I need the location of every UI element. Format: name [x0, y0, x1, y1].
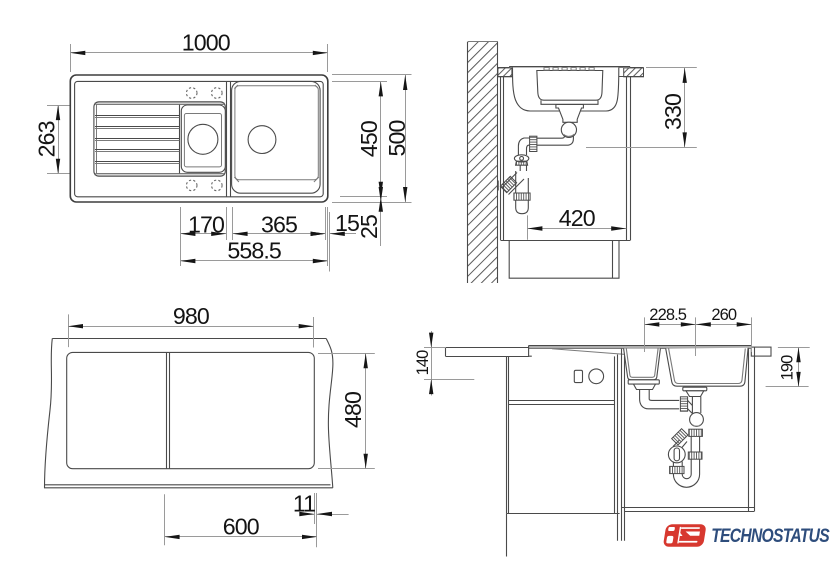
svg-text:TECHNOSTATUS: TECHNOSTATUS	[711, 525, 830, 547]
svg-text:15: 15	[335, 210, 359, 236]
svg-text:480: 480	[340, 392, 366, 428]
svg-text:263: 263	[34, 121, 60, 157]
svg-text:140: 140	[414, 350, 432, 376]
svg-text:260: 260	[711, 306, 737, 324]
svg-text:330: 330	[660, 94, 686, 130]
svg-text:420: 420	[559, 205, 595, 231]
svg-text:25: 25	[356, 215, 382, 239]
svg-text:558.5: 558.5	[227, 237, 281, 263]
svg-text:228.5: 228.5	[649, 306, 687, 324]
svg-text:500: 500	[384, 121, 410, 157]
svg-text:600: 600	[223, 513, 259, 539]
svg-text:1000: 1000	[182, 29, 230, 55]
svg-text:365: 365	[261, 211, 297, 237]
svg-text:11: 11	[293, 490, 315, 516]
svg-text:980: 980	[173, 303, 209, 329]
svg-text:450: 450	[356, 121, 382, 157]
svg-text:170: 170	[188, 211, 224, 237]
svg-text:190: 190	[778, 355, 796, 381]
